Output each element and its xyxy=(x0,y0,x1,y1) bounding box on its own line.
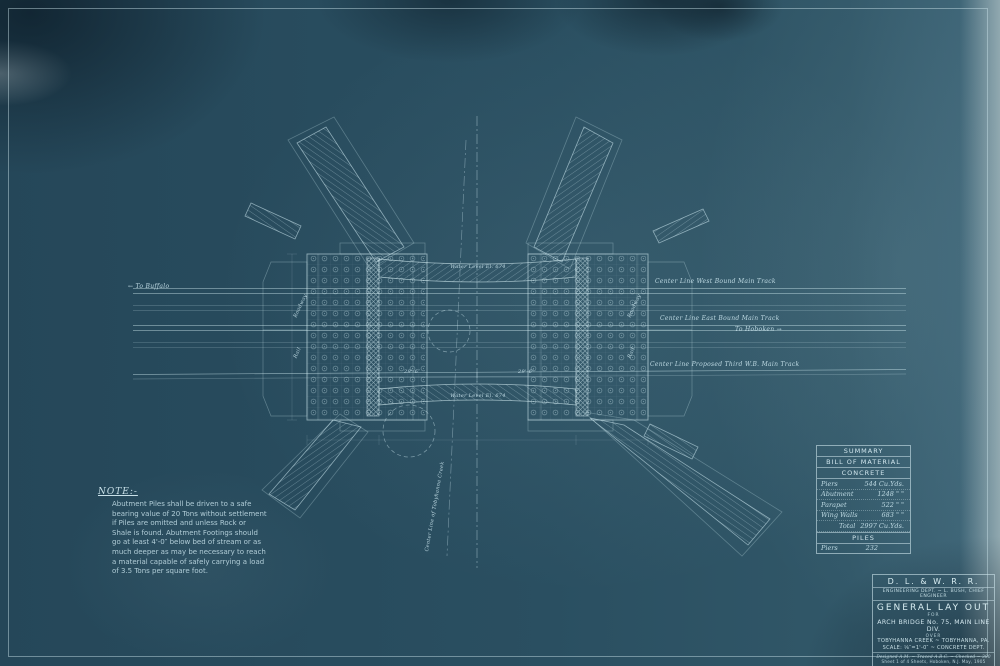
east-track-label: Center Line East Bound Main Track xyxy=(660,315,780,322)
note-line: if Piles are omitted and unless Rock or xyxy=(112,519,308,529)
table-row-total: Total 2997 Cu.Yds. xyxy=(817,521,910,532)
water-level-bottom-label: Water Level El. 674 xyxy=(432,393,524,399)
note-line: much deeper as may be necessary to reach xyxy=(112,548,308,558)
table-row: Piers 232 xyxy=(817,544,910,554)
dim-left-label: 29'-6″ xyxy=(404,369,420,375)
table-row: Piers 544 Cu.Yds. xyxy=(817,479,910,490)
row-label: Piers xyxy=(821,480,838,488)
row-label: Piers xyxy=(821,544,838,552)
location-line: TOBYHANNA CREEK ~ TOBYHANNA, PA. xyxy=(873,638,994,644)
blueprint-sheet: ← To Buffalo Center Line West Bound Main… xyxy=(0,0,1000,666)
third-track-label: Center Line Proposed Third W.B. Main Tra… xyxy=(650,361,799,368)
note-line: a material capable of safely carrying a … xyxy=(112,558,308,568)
water-level-top-label: Water Level El. 674 xyxy=(432,264,524,270)
row-value: 2997 Cu.Yds. xyxy=(860,522,906,530)
railroad-name: D. L. & W. R. R. xyxy=(873,575,994,588)
piles-section-header: PILES xyxy=(817,532,910,544)
summary-title: SUMMARY xyxy=(817,446,910,457)
to-hoboken-label: To Hoboken → xyxy=(735,326,782,333)
dim-right-label: 29'-6″ xyxy=(518,369,534,375)
note-line: of 3.5 Tons per square foot. xyxy=(112,567,308,577)
bill-of-material-table: SUMMARY BILL OF MATERIAL CONCRETE Piers … xyxy=(816,445,911,554)
west-track-label: Center Line West Bound Main Track xyxy=(655,278,776,285)
drawing-title: GENERAL LAY OUT xyxy=(873,601,994,613)
note-body: Abutment Piles shall be driven to a safe… xyxy=(112,500,308,577)
row-label: Parapet xyxy=(821,501,847,509)
row-label: Wing Walls xyxy=(821,511,858,519)
note-line: go at least 4'-0″ below bed of stream or… xyxy=(112,538,308,548)
row-value: 232 xyxy=(866,544,906,552)
department-line: ENGINEERING DEPT. ~ L. BUSH, CHIEF ENGIN… xyxy=(873,588,994,601)
bill-of-material-title: BILL OF MATERIAL xyxy=(817,457,910,468)
note-line: bearing value of 20 Tons without settlem… xyxy=(112,510,308,520)
drawing-subject: ARCH BRIDGE No. 75, MAIN LINE DIV. xyxy=(873,618,994,633)
row-value: 544 Cu.Yds. xyxy=(864,480,906,488)
row-value: 1248 " " xyxy=(877,490,906,498)
row-label: Abutment xyxy=(821,490,853,498)
sheet-info-line: Sheet 1 of 4 Sheets, Hoboken, N.J. May, … xyxy=(873,659,994,666)
note-line: Shale is found. Abutment Footings should xyxy=(112,529,308,539)
note-block: NOTE:- Abutment Piles shall be driven to… xyxy=(98,487,308,577)
row-value: 522 " " xyxy=(881,501,906,509)
table-row: Wing Walls 683 " " xyxy=(817,511,910,522)
title-block: D. L. & W. R. R. ENGINEERING DEPT. ~ L. … xyxy=(872,574,995,666)
row-label: Total xyxy=(821,522,855,530)
to-buffalo-label: ← To Buffalo xyxy=(128,283,169,290)
note-heading: NOTE:- xyxy=(98,487,308,497)
row-value: 683 " " xyxy=(881,511,906,519)
scale-line: SCALE: ⅛″=1'-0″ ~ CONCRETE DEPT. xyxy=(873,644,994,653)
table-row: Parapet 522 " " xyxy=(817,500,910,511)
table-row: Abutment 1248 " " xyxy=(817,490,910,501)
note-line: Abutment Piles shall be driven to a safe xyxy=(112,500,308,510)
concrete-section-header: CONCRETE xyxy=(817,468,910,479)
